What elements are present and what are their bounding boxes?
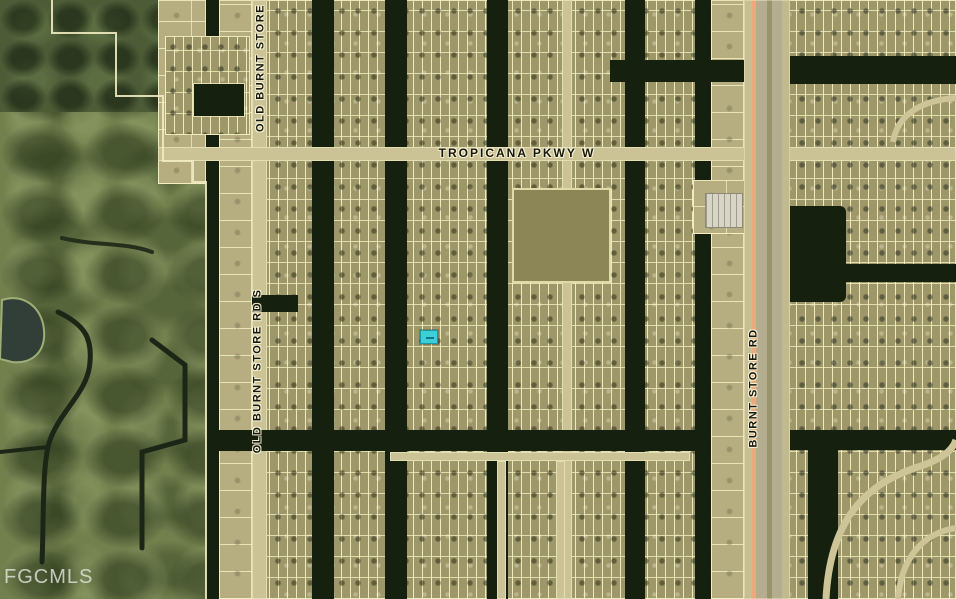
canal	[610, 60, 746, 82]
street-label-old-burnt-store-south: OLD BURNT STORE RD S	[253, 289, 264, 454]
street	[497, 461, 506, 599]
canal	[788, 430, 956, 450]
street-label-old-burnt-store-top: OLD BURNT STORE	[256, 4, 267, 132]
fgcmls-watermark: FGCMLS	[4, 567, 93, 587]
canal	[808, 450, 838, 599]
block-pond	[194, 84, 244, 116]
canal	[788, 56, 956, 84]
woods-patch	[0, 0, 160, 112]
street-label-tropicana: TROPICANA PKWY W	[439, 147, 596, 159]
canal	[385, 0, 407, 599]
commercial-building	[705, 193, 743, 228]
vacant-lots-strip	[711, 0, 744, 599]
burnt-store-road	[744, 0, 790, 599]
canal	[206, 430, 695, 451]
street-label-burnt-store: BURNT STORE RD	[749, 328, 760, 447]
canal	[625, 0, 645, 599]
canal	[312, 0, 334, 599]
aerial-map-image: TROPICANA PKWY W OLD BURNT STORE OLD BUR…	[0, 0, 956, 599]
canal	[844, 264, 956, 282]
street	[390, 452, 690, 461]
subject-property-marker	[420, 330, 438, 344]
vacant-field	[512, 188, 611, 283]
street	[556, 461, 565, 599]
marker-dot	[426, 337, 434, 339]
canal	[695, 0, 711, 599]
